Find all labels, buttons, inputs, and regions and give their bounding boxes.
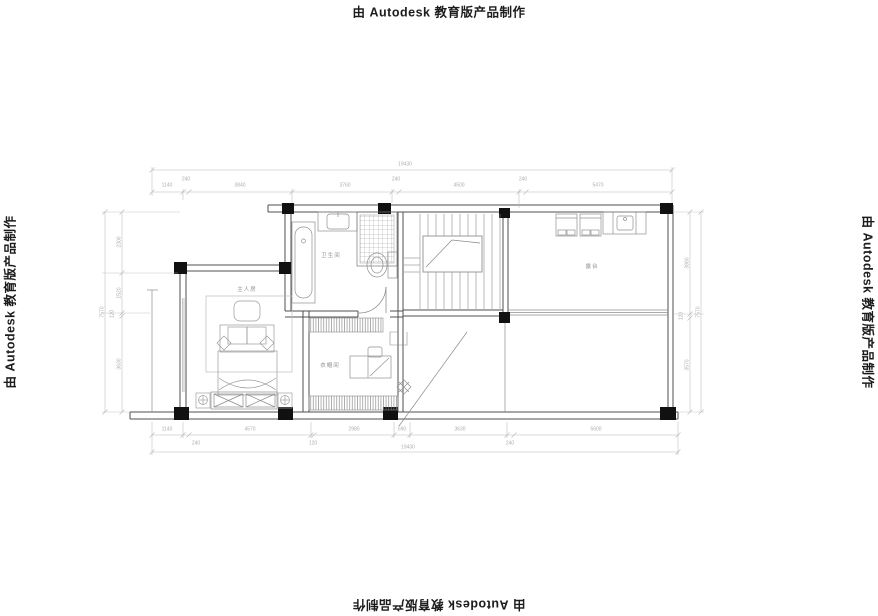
bedroom-furniture bbox=[196, 296, 292, 409]
stairs bbox=[404, 214, 500, 309]
shower bbox=[357, 212, 397, 266]
plant bbox=[397, 380, 411, 394]
dim-label: 120 bbox=[680, 312, 685, 320]
foot-bench bbox=[211, 392, 277, 409]
pouf bbox=[234, 301, 260, 321]
dim-label: 3880 bbox=[686, 257, 691, 268]
dim-label: 4570 bbox=[244, 428, 255, 433]
dim-label: 240 bbox=[506, 442, 514, 447]
wardrobe-top bbox=[309, 318, 383, 332]
dim-label: 3760 bbox=[339, 184, 350, 189]
dim-label: 3630 bbox=[118, 358, 123, 369]
wardrobe-bottom bbox=[309, 396, 398, 410]
floor-plan bbox=[0, 0, 878, 616]
dim-label: 5600 bbox=[590, 428, 601, 433]
dim-label: 3570 bbox=[686, 359, 691, 370]
bed-headboard bbox=[217, 325, 274, 352]
dim-label: 240 bbox=[392, 178, 400, 183]
bathtub bbox=[292, 222, 315, 303]
cad-viewport: 由 Autodesk 教育版产品制作 由 Autodesk 教育版产品制作 由 … bbox=[0, 0, 878, 616]
dim-label: 2300 bbox=[118, 236, 123, 247]
dim-label: 120 bbox=[309, 442, 317, 447]
dim-right-total: 7570 bbox=[697, 306, 702, 317]
room-label-master-bedroom: 主人房 bbox=[237, 287, 257, 293]
bathroom-fixtures bbox=[292, 212, 397, 313]
dim-label: 4500 bbox=[453, 184, 464, 189]
bed bbox=[218, 351, 277, 395]
plant-stand-right bbox=[278, 393, 292, 408]
dim-bottom-total: 19430 bbox=[401, 446, 415, 451]
appliance-2 bbox=[580, 214, 601, 236]
dim-label: 240 bbox=[182, 178, 190, 183]
vanity-sink bbox=[318, 212, 357, 231]
room-label-terrace: 露台 bbox=[585, 264, 598, 270]
room-label-bathroom: 卫生间 bbox=[321, 253, 341, 259]
dim-label: 240 bbox=[192, 442, 200, 447]
dim-label: 2980 bbox=[348, 428, 359, 433]
dim-label: 3840 bbox=[234, 184, 245, 189]
dim-label: 1140 bbox=[162, 184, 173, 189]
bathroom-door bbox=[359, 287, 386, 313]
dim-label: 5470 bbox=[592, 184, 603, 189]
dim-label: 1520 bbox=[118, 287, 123, 298]
counter-sink bbox=[603, 212, 646, 234]
dim-label: 3630 bbox=[454, 428, 465, 433]
dim-label: 1140 bbox=[162, 428, 173, 433]
terrace-units bbox=[556, 212, 646, 236]
stair-break-panel bbox=[423, 236, 482, 272]
plant-stand-left bbox=[196, 393, 210, 408]
island-dresser bbox=[350, 347, 391, 378]
appliance-1 bbox=[556, 214, 577, 236]
room-label-cloakroom: 衣帽间 bbox=[320, 363, 340, 369]
dim-top-total: 19430 bbox=[398, 163, 412, 168]
dim-left-total: 7570 bbox=[101, 306, 106, 317]
rug bbox=[206, 296, 292, 372]
dim-label: 590 bbox=[398, 428, 406, 433]
dim-label: 240 bbox=[519, 178, 527, 183]
dim-label: 120 bbox=[111, 310, 116, 318]
